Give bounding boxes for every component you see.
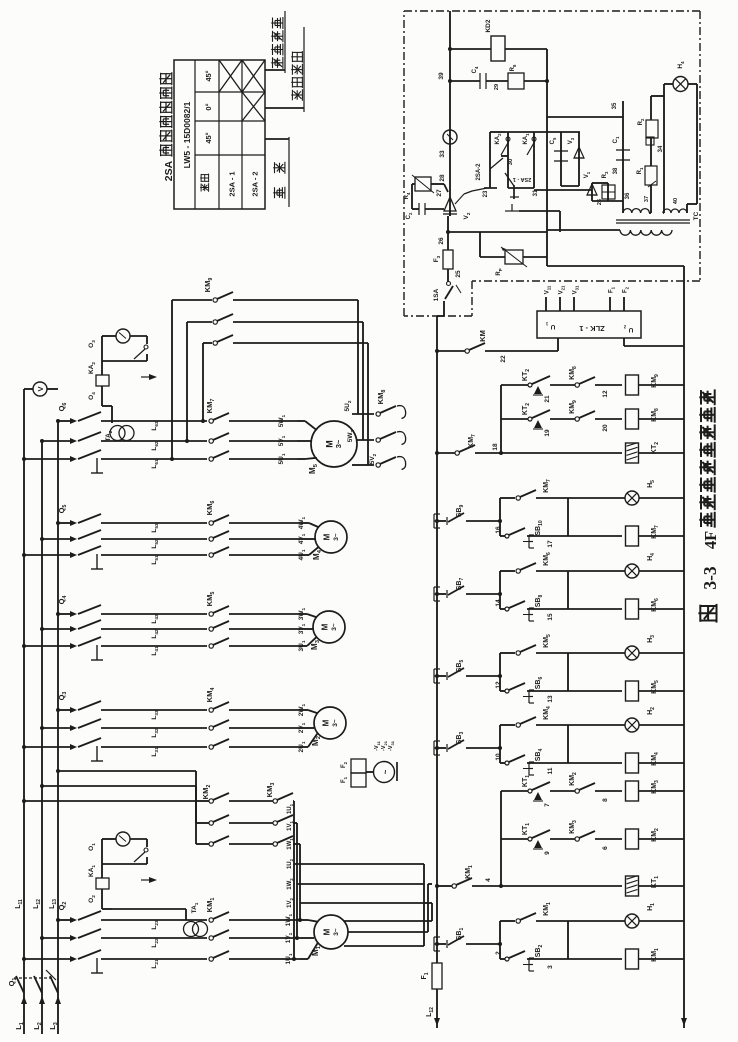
svg-text:V31: V31 <box>573 285 580 294</box>
svg-text:21: 21 <box>544 395 551 403</box>
svg-text:45°: 45° <box>204 70 213 81</box>
svg-text:25: 25 <box>455 270 462 278</box>
svg-text:M: M <box>323 533 332 540</box>
svg-text:-V11: -V11 <box>374 740 381 751</box>
svg-text:R2: R2 <box>638 118 645 125</box>
svg-text:M: M <box>321 623 330 630</box>
svg-text:15: 15 <box>547 613 554 621</box>
svg-text:V11: V11 <box>545 285 552 294</box>
svg-text:3~: 3~ <box>331 623 338 631</box>
svg-text:F1: F1 <box>609 286 616 293</box>
svg-text:ZLK - 1: ZLK - 1 <box>579 324 604 333</box>
svg-text:45°: 45° <box>204 132 213 143</box>
svg-text:-V31: -V31 <box>388 740 395 751</box>
svg-text:28: 28 <box>439 174 446 182</box>
svg-text:KA1: KA1 <box>523 133 530 145</box>
svg-text:V: V <box>36 386 45 391</box>
svg-text:TC: TC <box>693 211 700 220</box>
svg-text:V21: V21 <box>559 285 566 294</box>
svg-text:2: 2 <box>495 951 502 955</box>
svg-text:3-3: 3-3 <box>700 566 720 590</box>
svg-text:26: 26 <box>438 237 445 245</box>
svg-text:2SA: 2SA <box>163 160 175 181</box>
svg-text:1U2: 1U2 <box>287 858 294 869</box>
svg-text:4: 4 <box>485 878 492 882</box>
svg-text:C1: C1 <box>613 136 620 143</box>
svg-text:27: 27 <box>436 189 443 197</box>
svg-text:19: 19 <box>544 429 551 437</box>
svg-text:40: 40 <box>673 198 679 204</box>
svg-text:3~: 3~ <box>332 719 339 727</box>
svg-text:R1: R1 <box>637 167 644 174</box>
svg-text:1SA: 1SA <box>433 288 440 301</box>
svg-text:U: U <box>550 323 555 330</box>
svg-text:17: 17 <box>547 540 554 548</box>
svg-text:39: 39 <box>438 72 445 80</box>
svg-text:F2: F2 <box>341 761 348 768</box>
svg-text:RP: RP <box>496 268 503 275</box>
svg-text:U: U <box>628 326 633 333</box>
svg-text:1V1: 1V1 <box>287 821 294 831</box>
svg-text:KA2: KA2 <box>495 133 502 145</box>
svg-text:2SA-2: 2SA-2 <box>476 163 482 181</box>
svg-text:37: 37 <box>644 196 650 202</box>
svg-text:2SA - 1: 2SA - 1 <box>513 176 531 182</box>
svg-text:V1: V1 <box>584 171 591 178</box>
svg-text:38: 38 <box>613 167 619 174</box>
svg-text:M: M <box>325 440 335 448</box>
svg-text:12: 12 <box>495 681 502 689</box>
svg-text:6: 6 <box>602 846 609 850</box>
svg-text:10: 10 <box>495 753 502 761</box>
svg-text:22: 22 <box>500 355 507 363</box>
svg-text:-V21: -V21 <box>381 740 388 751</box>
svg-text:36: 36 <box>625 192 631 199</box>
svg-text:2SA - 1: 2SA - 1 <box>228 171 237 196</box>
svg-text:13: 13 <box>547 695 554 703</box>
svg-text:20: 20 <box>602 424 609 432</box>
svg-text:33: 33 <box>439 150 446 158</box>
svg-text:16: 16 <box>495 526 502 534</box>
svg-text:23: 23 <box>483 190 489 197</box>
svg-text:1W2: 1W2 <box>287 878 294 890</box>
svg-text:11: 11 <box>547 767 554 774</box>
svg-text:3~: 3~ <box>334 439 343 448</box>
svg-text:3~: 3~ <box>333 533 340 541</box>
svg-text:26: 26 <box>597 199 603 205</box>
svg-text:12: 12 <box>602 390 609 398</box>
svg-text:~: ~ <box>381 769 390 774</box>
svg-text:M: M <box>323 928 332 935</box>
svg-text:18: 18 <box>492 443 499 451</box>
svg-text:R3: R3 <box>602 171 609 178</box>
svg-text:F2: F2 <box>623 286 630 293</box>
svg-text:C4: C4 <box>472 66 479 73</box>
svg-text:R4: R4 <box>404 192 411 199</box>
svg-text:9: 9 <box>544 851 551 855</box>
svg-text:35: 35 <box>612 102 618 109</box>
svg-text:3: 3 <box>547 965 554 969</box>
svg-text:29: 29 <box>494 84 500 90</box>
svg-text:1U1: 1U1 <box>287 803 294 814</box>
svg-text:1W1: 1W1 <box>287 838 294 850</box>
svg-text:F1: F1 <box>341 776 348 783</box>
svg-text:14: 14 <box>495 599 502 607</box>
svg-text:C5: C5 <box>550 137 557 144</box>
svg-text:M: M <box>322 719 331 726</box>
svg-text:C2: C2 <box>406 212 413 219</box>
svg-text:2SA - 2: 2SA - 2 <box>251 171 260 196</box>
svg-text:R8: R8 <box>510 64 517 71</box>
svg-text:3~: 3~ <box>333 928 340 936</box>
svg-text:4F: 4F <box>701 531 720 549</box>
svg-text:V3: V3 <box>568 137 575 144</box>
svg-text:7: 7 <box>544 803 551 807</box>
svg-text:KD2: KD2 <box>485 19 492 32</box>
svg-text:1V2: 1V2 <box>287 898 294 908</box>
svg-text:8: 8 <box>602 798 609 802</box>
svg-text:KM: KM <box>478 330 487 342</box>
svg-text:0°: 0° <box>204 103 213 110</box>
svg-text:LW5 - 15D0082/1: LW5 - 15D0082/1 <box>182 101 192 168</box>
